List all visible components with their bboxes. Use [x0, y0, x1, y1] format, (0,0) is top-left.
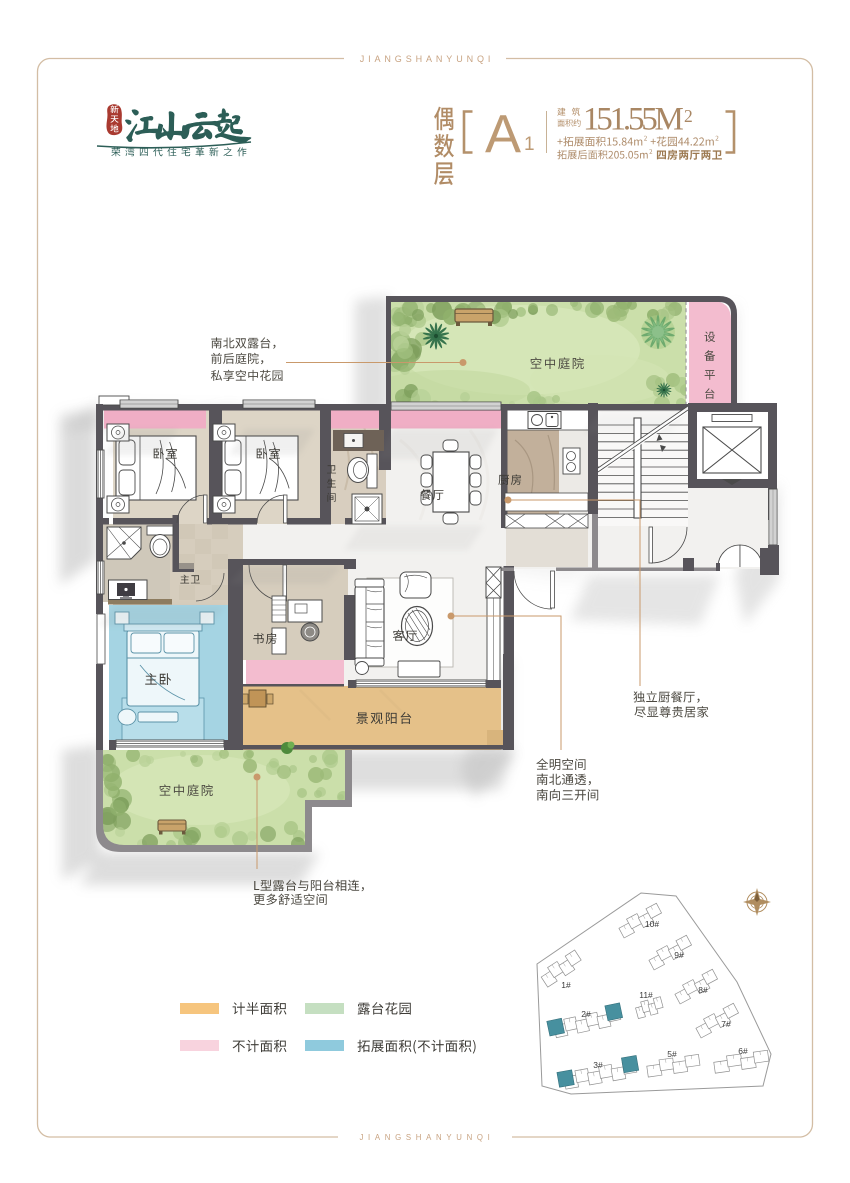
- svg-text:5#: 5#: [667, 1049, 677, 1059]
- svg-text:1#: 1#: [561, 980, 571, 990]
- svg-text:8#: 8#: [698, 985, 708, 995]
- svg-text:151.55M: 151.55M: [583, 102, 684, 138]
- svg-text:2: 2: [684, 106, 693, 126]
- svg-text:A: A: [485, 105, 521, 165]
- svg-text:10#: 10#: [645, 919, 659, 929]
- svg-text:JIANGSHANYUNQI: JIANGSHANYUNQI: [359, 1133, 494, 1142]
- svg-text:1: 1: [524, 134, 535, 155]
- svg-text:7#: 7#: [721, 1019, 731, 1029]
- svg-text:2#: 2#: [581, 1009, 591, 1019]
- svg-text:11#: 11#: [639, 990, 653, 1000]
- svg-text:6#: 6#: [738, 1046, 748, 1056]
- svg-text:9#: 9#: [674, 950, 684, 960]
- svg-text:3#: 3#: [593, 1060, 603, 1070]
- svg-text:JIANGSHANYUNQI: JIANGSHANYUNQI: [360, 54, 495, 64]
